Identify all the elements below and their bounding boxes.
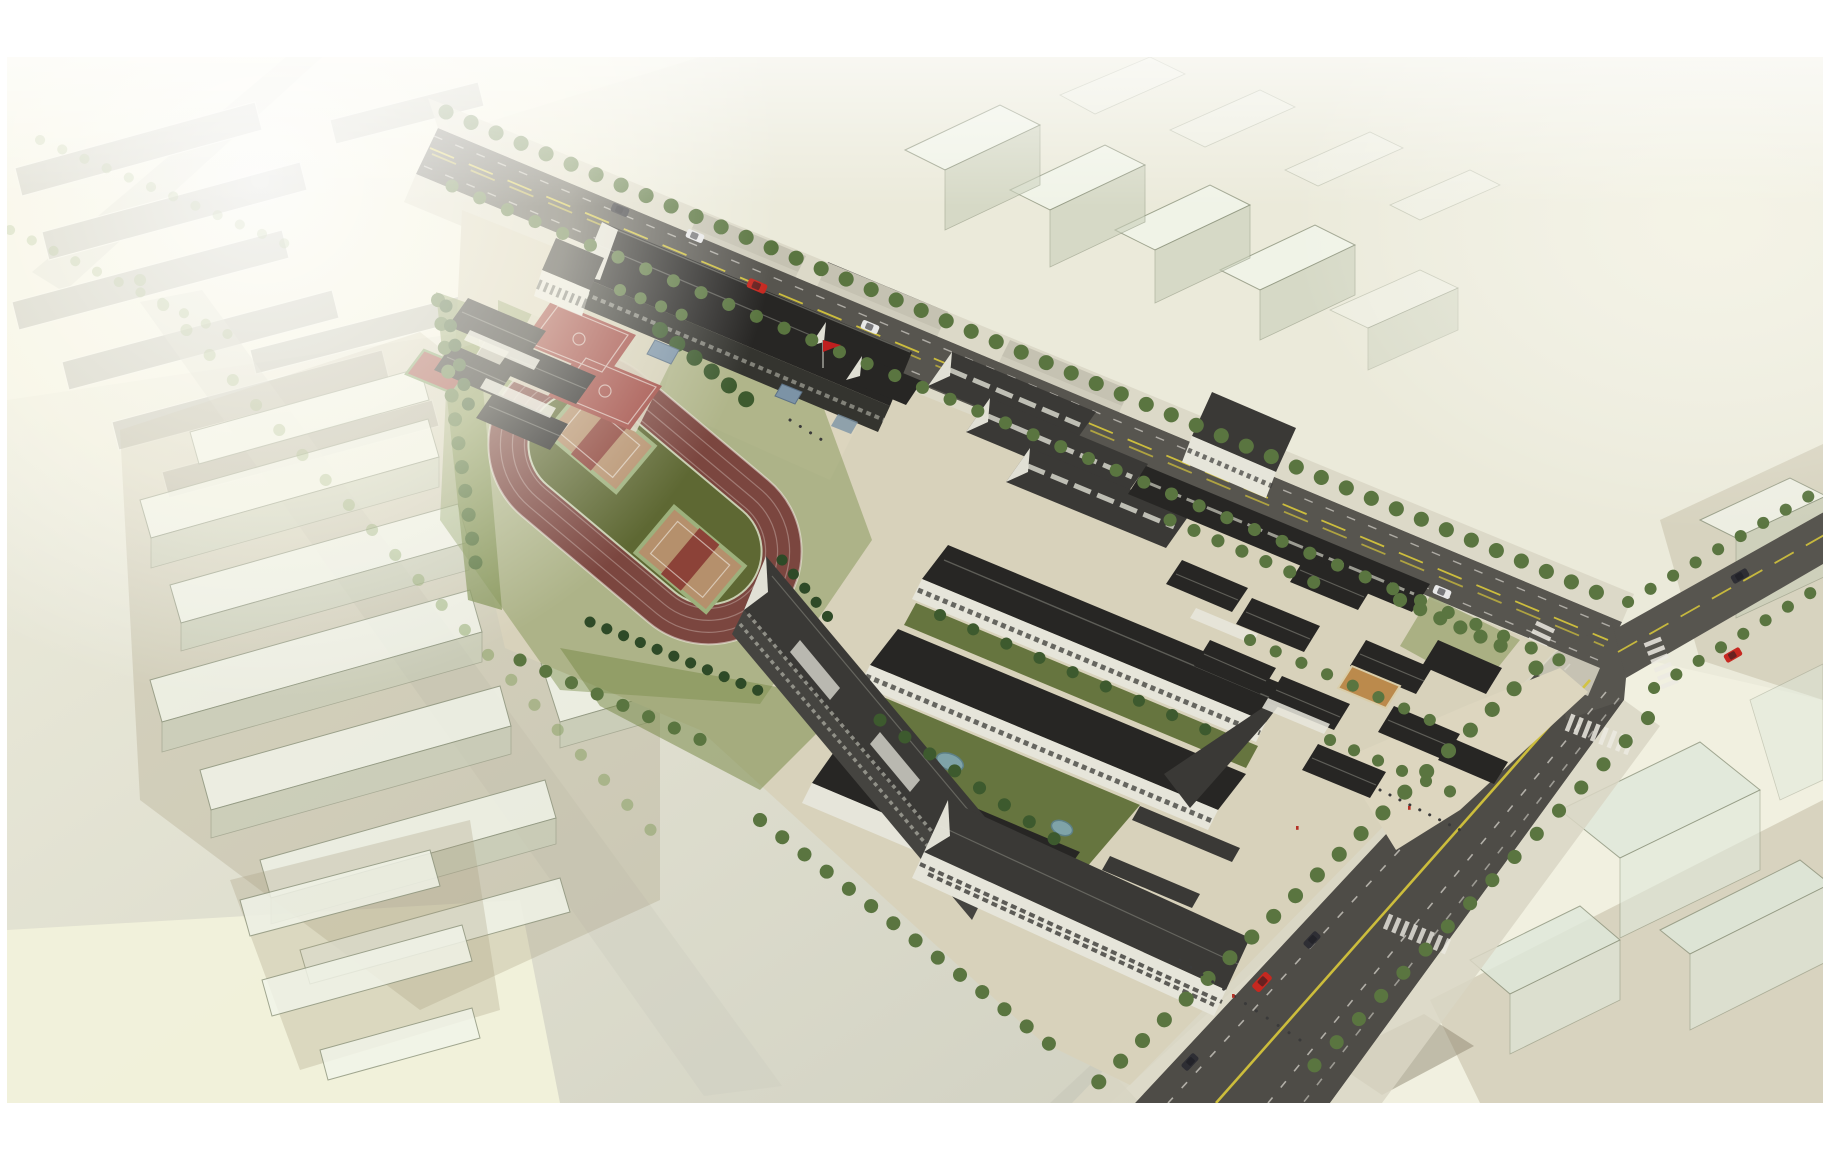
haze-top-band [7,57,1823,207]
person-red [1296,826,1299,830]
person-red [1408,806,1411,810]
person-red [1232,994,1235,998]
scene [0,0,1830,1103]
rendering-page [0,0,1830,1153]
campus-aerial-rendering [0,0,1830,1153]
